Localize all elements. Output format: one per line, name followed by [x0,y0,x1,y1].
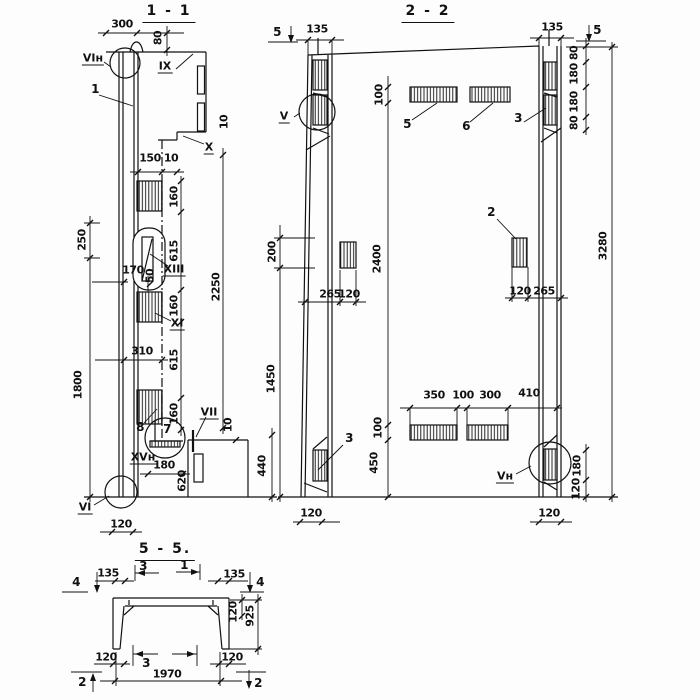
dim-120-mid-right: 120 [509,286,530,297]
dim-170: 170 [122,265,143,276]
dim-250: 250 [77,229,88,250]
cut-mark-4-left: 4 [72,576,80,588]
engineering-drawing: 1 - 1 2 - 2 5 - 5. 300 80 10 150 10 160 … [0,0,700,700]
dim-310: 310 [131,346,152,357]
dim-1970: 1970 [153,669,182,680]
dim-120-bottom-right-chain: 120 [571,478,582,499]
dim-10-bracket: 10 [223,418,234,432]
dim-10-top: 10 [164,153,178,164]
mark-ix: IX [158,61,173,74]
mark-vi: VI [78,502,93,515]
mark-x: X [204,142,214,155]
dim-120-bottom-right: 120 [538,508,559,519]
dim-135-left: 135 [306,24,327,35]
view-5-5-outline [113,598,229,649]
drawing-linework [0,0,700,700]
dim-135-left-55: 135 [97,568,118,579]
dim-160-a: 160 [169,186,180,207]
part-label-3-bottom: 3 [345,432,353,444]
part-label-7: 7 [163,423,171,435]
dim-450: 450 [369,452,380,473]
dim-1450: 1450 [266,365,277,394]
dim-150: 150 [139,153,160,164]
dim-620: 620 [177,470,188,491]
dim-410: 410 [518,388,539,399]
mark-v-n: Vн [496,471,514,484]
dim-180-bottom-right: 180 [572,455,583,476]
view-1-1-dimensions [84,26,275,535]
dim-120-right-55: 120 [228,601,239,622]
dim-265-right: 265 [533,286,554,297]
mark-xi: XI [170,318,185,331]
dim-160-b: 160 [169,295,180,316]
dim-200: 200 [267,241,278,262]
mark-xv-n: XVн [130,452,157,465]
dim-300: 300 [479,390,500,401]
cut-mark-5-left: 5 [273,26,281,38]
dim-80: 80 [153,31,164,45]
cut-mark-2-left: 2 [78,676,86,688]
mark-vii: VII [200,407,219,420]
part-label-3-top: 3 [514,112,522,124]
cut-mark-4-right: 4 [256,576,264,588]
dim-1800: 1800 [73,371,84,400]
dim-10-step: 10 [219,115,230,129]
dim-180-a: 180 [569,63,580,84]
dim-80-b: 80 [569,116,580,130]
dim-180: 180 [153,460,174,471]
dim-2400: 2400 [372,245,383,274]
part-label-2: 2 [487,206,495,218]
dim-50: 50 [145,269,156,283]
mark-vi-n: VIн [82,53,104,66]
part-label-8: 8 [136,421,144,433]
dim-2250: 2250 [211,273,222,302]
dim-100-bottom: 100 [373,417,384,438]
cut-mark-1-top: 1 [180,559,188,571]
dim-615-b: 615 [169,349,180,370]
cut-mark-2-right: 2 [254,677,262,689]
cut-mark-5-right: 5 [593,24,601,36]
dim-300: 300 [111,19,132,30]
part-label-5: 5 [403,118,411,130]
mark-v: V [279,111,290,124]
dim-120-left: 120 [338,289,359,300]
dim-135-right-55: 135 [223,569,244,580]
dim-120-bottom-left-55: 120 [95,652,116,663]
cut-mark-3-top: 3 [139,560,147,572]
cut-mark-3-bottom: 3 [142,657,150,669]
dim-100-mid: 100 [452,390,473,401]
dim-100-top: 100 [374,84,385,105]
mark-xiii: XIII [163,264,186,277]
part-label-6: 6 [462,120,470,132]
dim-3280: 3280 [598,232,609,261]
dim-120-bottom-right-55: 120 [221,652,242,663]
section-title-1-1: 1 - 1 [142,3,195,23]
dim-180-b: 180 [569,91,580,112]
dim-80-a: 80 [569,46,580,60]
dim-120-bottom-left: 120 [300,508,321,519]
dim-120: 120 [110,519,131,530]
dim-350: 350 [423,390,444,401]
dim-440: 440 [257,455,268,476]
dim-135-right: 135 [541,22,562,33]
dim-615-a: 615 [169,240,180,261]
section-title-2-2: 2 - 2 [401,3,454,23]
part-label-1: 1 [91,83,99,95]
dim-925: 925 [245,605,256,626]
